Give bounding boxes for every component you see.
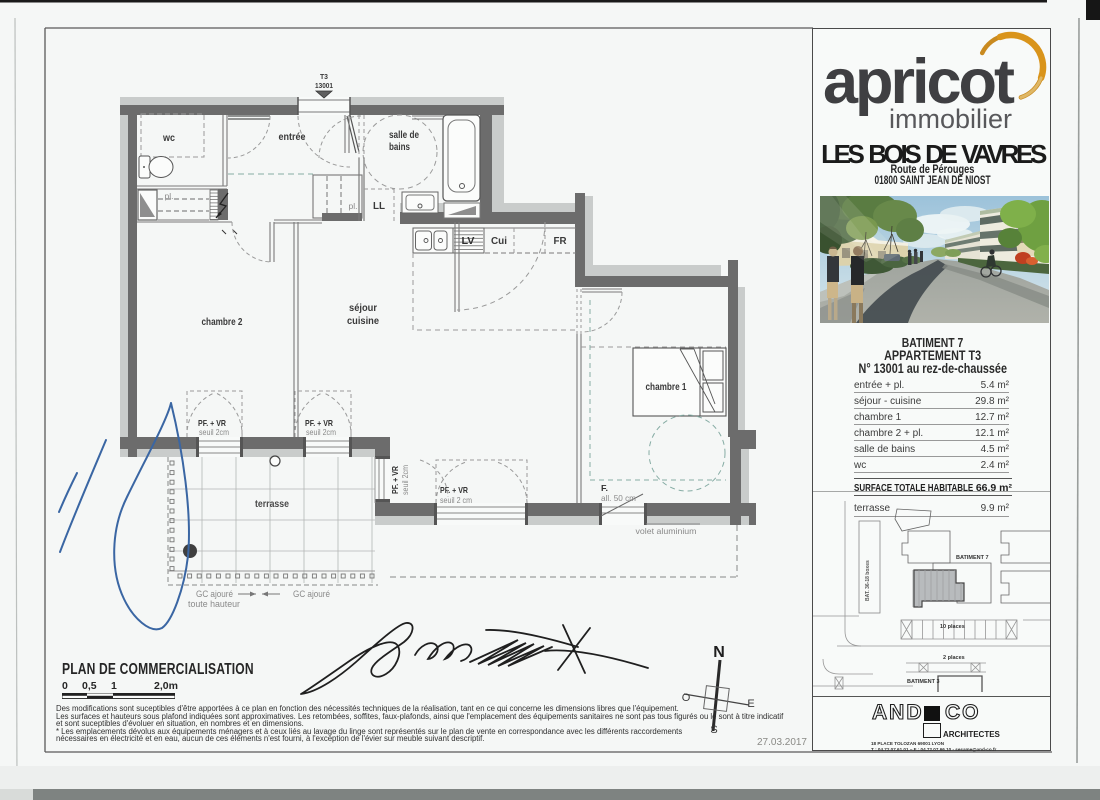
svg-text:chambre 1: chambre 1 [646,382,687,393]
svg-text:seuil 2cm: seuil 2cm [306,427,336,437]
svg-text:seuil 2cm: seuil 2cm [199,427,229,437]
svg-text:13001: 13001 [315,83,333,90]
svg-text:cuisine: cuisine [347,316,379,327]
svg-text:10 places: 10 places [940,624,965,630]
svg-text:PF. + VR: PF. + VR [390,466,400,494]
svg-text:bains: bains [389,142,410,153]
svg-text:BAT. 36-18 boxes: BAT. 36-18 boxes [865,560,871,601]
svg-text:toute hauteur: toute hauteur [188,599,240,609]
svg-text:Cui: Cui [491,236,507,247]
svg-text:salle de: salle de [389,130,419,141]
svg-text:wc: wc [162,133,175,144]
svg-text:2 places: 2 places [943,655,965,661]
svg-text:BATIMENT 3: BATIMENT 3 [907,679,940,685]
svg-text:pl.: pl. [349,202,358,211]
svg-text:GC ajouré: GC ajouré [196,589,233,599]
svg-text:N: N [713,644,725,661]
svg-text:entrée: entrée [279,132,306,143]
svg-text:PF. + VR: PF. + VR [440,485,468,495]
svg-text:all. 50 cm: all. 50 cm [601,493,636,503]
svg-text:chambre 2: chambre 2 [202,317,243,328]
svg-text:F.: F. [601,483,608,493]
svg-text:T3: T3 [320,74,328,81]
svg-text:volet aluminium: volet aluminium [636,526,697,536]
svg-text:27.03.2017: 27.03.2017 [757,737,807,748]
svg-text:O: O [682,692,691,704]
svg-text:LV: LV [462,236,475,247]
svg-text:FR: FR [554,236,568,247]
svg-text:LL: LL [373,201,385,212]
svg-text:séjour: séjour [349,303,377,314]
svg-text:GC ajouré: GC ajouré [293,589,330,599]
svg-text:terrasse: terrasse [255,499,289,510]
svg-text:BATIMENT 7: BATIMENT 7 [956,555,989,561]
svg-text:seuil 2cm: seuil 2cm [400,465,410,495]
svg-text:seuil 2 cm: seuil 2 cm [440,495,472,505]
